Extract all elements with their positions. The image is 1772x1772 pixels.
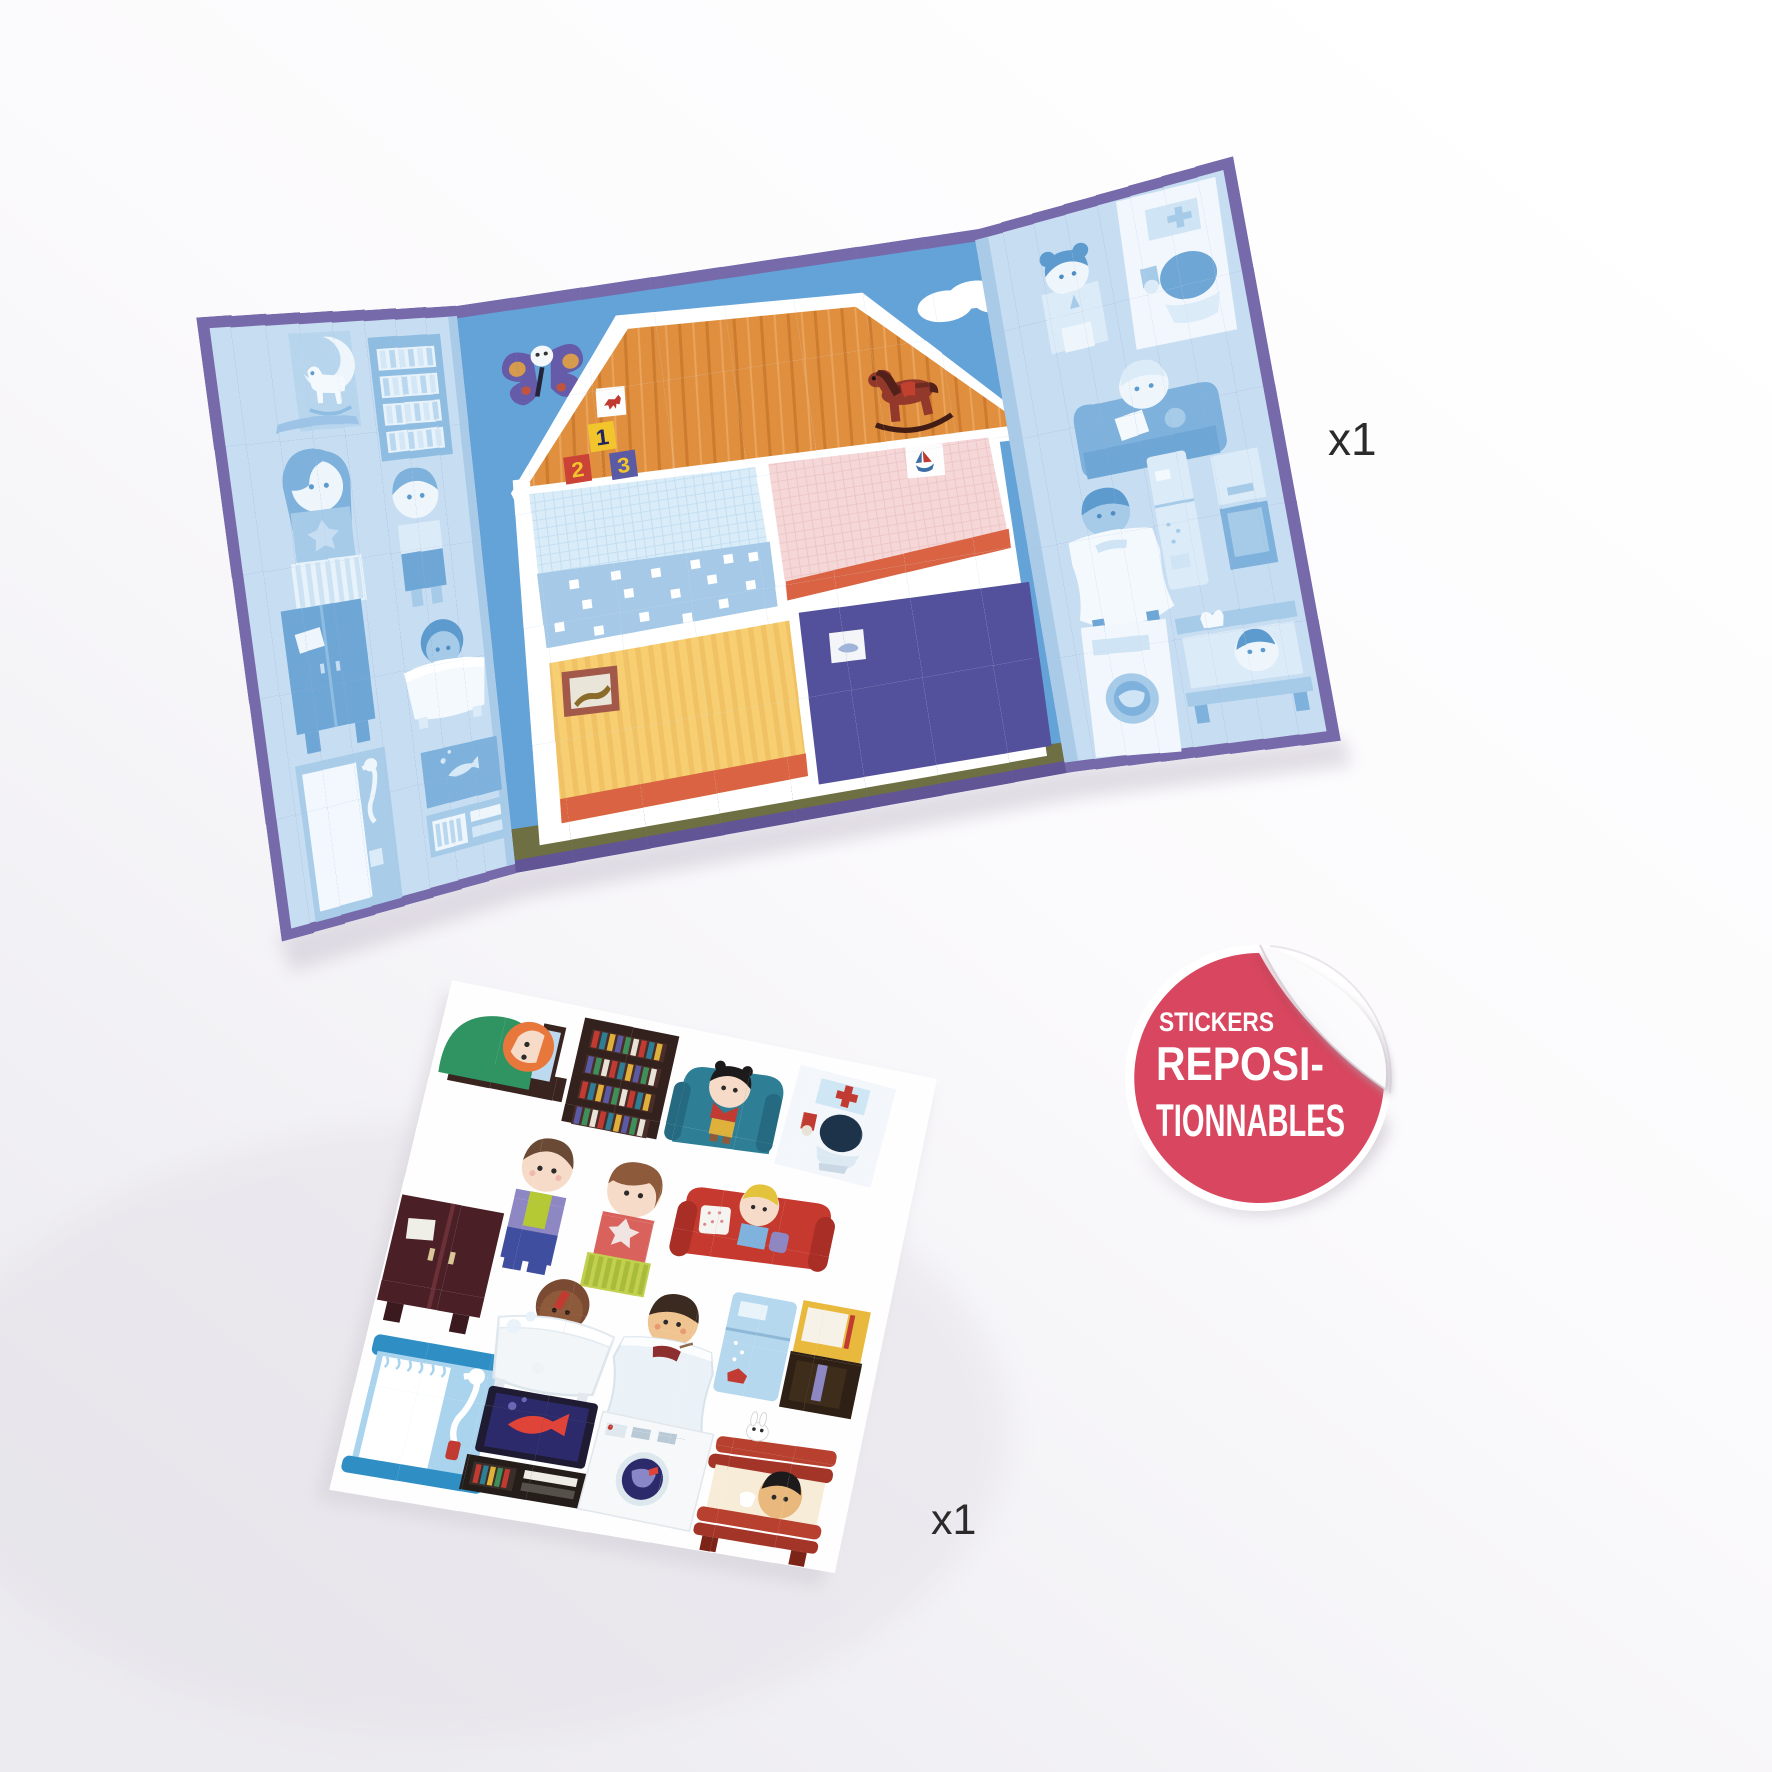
svg-text:x1: x1 [1328,413,1377,465]
svg-text:TIONNABLES: TIONNABLES [1156,1095,1345,1146]
svg-text:STICKERS: STICKERS [1159,1007,1274,1037]
svg-text:x1: x1 [931,1496,976,1544]
svg-text:REPOSI-: REPOSI- [1156,1037,1324,1090]
